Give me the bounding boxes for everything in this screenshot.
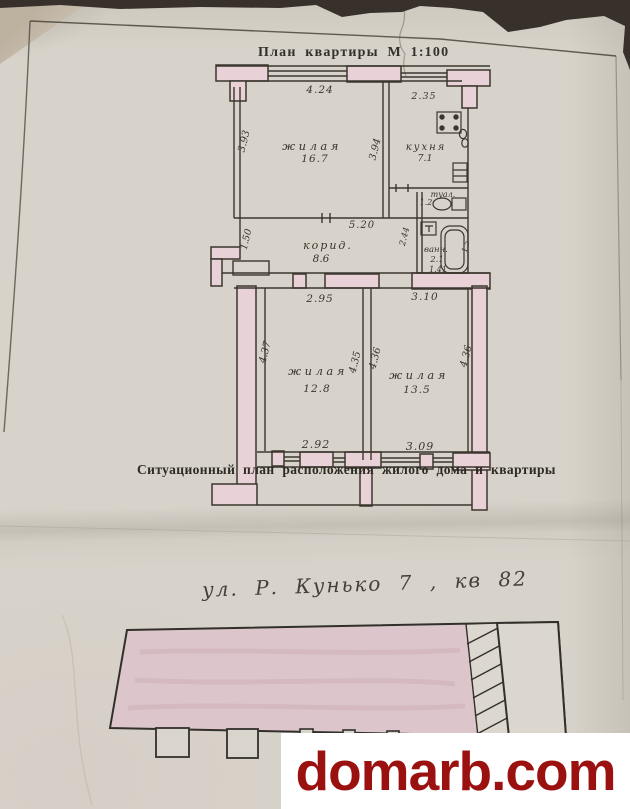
situational-plan-drawing [0, 0, 630, 809]
porch-1 [156, 728, 189, 757]
scanned-floor-plan-photo: жилая 16.7 кухня 7.1 туал. 1.2 ванн. 2.1… [0, 0, 630, 809]
situational-caption: Ситуационный план расположения жилого до… [137, 462, 556, 478]
watermark-band: domarb.com [281, 733, 630, 809]
watermark-text: domarb.com [295, 736, 615, 806]
building-end-section [497, 622, 566, 737]
porch-2 [227, 729, 258, 758]
photo-background-edge [0, 0, 630, 80]
